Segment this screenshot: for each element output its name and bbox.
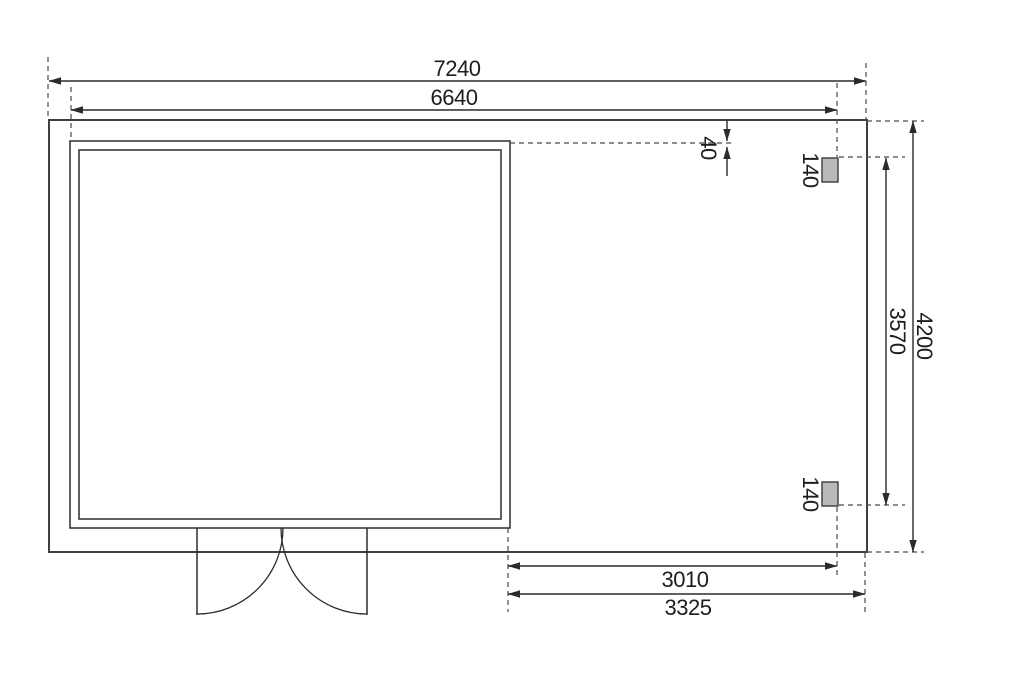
floor-plan-drawing: 7240 6640 3010 3325 3570 4200 40 140 140 — [0, 0, 1024, 690]
dim-label-post-top-size: 140 — [798, 152, 823, 187]
dim-label-annex-inner-width: 3010 — [662, 567, 709, 592]
dim-label-post-span: 3570 — [885, 308, 910, 355]
dim-label-annex-outer-width: 3325 — [665, 595, 712, 620]
floor-plan-canvas: 7240 6640 3010 3325 3570 4200 40 140 140 — [0, 0, 1024, 690]
dim-label-overall-width: 7240 — [434, 56, 481, 81]
post-bottom-right — [822, 482, 838, 506]
post-top-right — [822, 158, 838, 182]
dim-label-post-bottom-size: 140 — [798, 476, 823, 511]
dim-label-overall-depth: 4200 — [912, 313, 937, 360]
dim-label-gap-40: 40 — [696, 136, 721, 160]
dim-label-cabin-width: 6640 — [431, 85, 478, 110]
platform-outline — [49, 120, 867, 552]
